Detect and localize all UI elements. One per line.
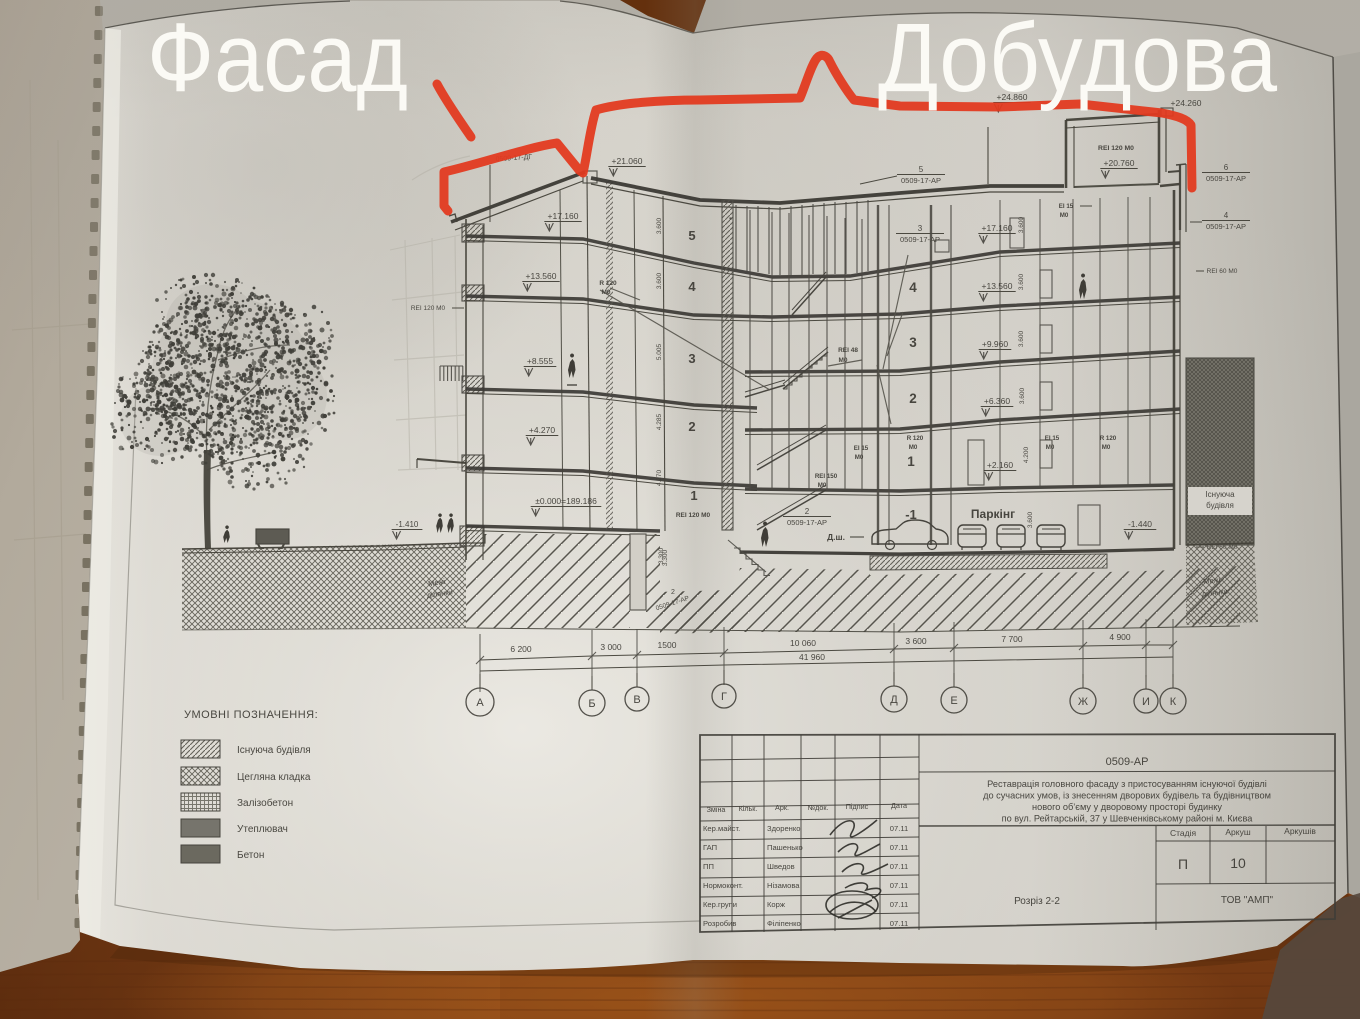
svg-text:EI 15: EI 15 — [854, 445, 869, 452]
svg-text:Паркінг: Паркінг — [971, 507, 1015, 521]
svg-text:2: 2 — [805, 507, 810, 516]
svg-text:3.600: 3.600 — [1018, 273, 1025, 290]
svg-text:M0: M0 — [1102, 444, 1111, 451]
svg-text:07.11: 07.11 — [890, 919, 908, 928]
svg-text:Нізамова: Нізамова — [767, 881, 800, 890]
svg-text:Стадія: Стадія — [1170, 828, 1197, 838]
svg-text:REI 120 M0: REI 120 M0 — [1098, 145, 1134, 152]
svg-text:Здоренко: Здоренко — [767, 824, 801, 833]
svg-text:0509-АР: 0509-АР — [1106, 756, 1149, 768]
svg-text:R 120: R 120 — [1100, 435, 1117, 442]
svg-text:EI 15: EI 15 — [1059, 203, 1074, 210]
svg-text:M0: M0 — [818, 482, 827, 489]
svg-text:+8.555: +8.555 — [527, 356, 554, 366]
svg-text:Пашенько: Пашенько — [767, 843, 803, 852]
svg-text:1500: 1500 — [658, 640, 677, 650]
svg-text:+4.270: +4.270 — [529, 425, 556, 435]
svg-text:Добудова: Добудова — [878, 3, 1277, 112]
svg-text:4.270: 4.270 — [656, 469, 663, 486]
svg-text:Б: Б — [588, 698, 595, 710]
svg-text:до сучасних умов, із знесенням: до сучасних умов, із знесенням дворових … — [983, 791, 1271, 801]
svg-text:Аркушів: Аркушів — [1284, 826, 1316, 836]
svg-text:3: 3 — [909, 335, 917, 350]
svg-text:Шведов: Шведов — [767, 862, 795, 871]
svg-text:П: П — [1178, 856, 1188, 872]
svg-text:M0: M0 — [1060, 212, 1069, 219]
svg-text:M0: M0 — [855, 454, 864, 461]
svg-text:Кер.майст.: Кер.майст. — [703, 824, 740, 833]
svg-text:+21.060: +21.060 — [612, 156, 643, 166]
svg-text:Д.ш.: Д.ш. — [827, 532, 845, 542]
svg-text:3.600: 3.600 — [1019, 387, 1026, 404]
svg-text:07.11: 07.11 — [890, 881, 908, 890]
svg-text:6: 6 — [1224, 163, 1229, 172]
svg-text:07.11: 07.11 — [890, 843, 908, 852]
svg-text:Нормоконт.: Нормоконт. — [703, 881, 743, 890]
svg-text:0509-17-АР: 0509-17-АР — [900, 235, 940, 244]
svg-text:Е: Е — [950, 695, 957, 707]
svg-text:M0: M0 — [909, 444, 918, 451]
svg-text:ГАП: ГАП — [703, 843, 717, 852]
svg-text:Межі: Межі — [1203, 575, 1221, 586]
svg-text:3.600: 3.600 — [656, 272, 663, 289]
svg-text:2: 2 — [909, 391, 917, 406]
svg-text:3 600: 3 600 — [905, 636, 927, 646]
svg-text:Філіпенко: Філіпенко — [767, 919, 801, 928]
svg-text:10: 10 — [1230, 855, 1246, 871]
svg-text:нового об’єму у дворовому прос: нового об’єму у дворовому просторі будин… — [1032, 802, 1222, 812]
svg-text:3.300: 3.300 — [662, 549, 669, 566]
svg-text:3.600: 3.600 — [1027, 511, 1034, 528]
svg-text:ТОВ "АМП": ТОВ "АМП" — [1221, 895, 1274, 906]
svg-text:+6.360: +6.360 — [984, 396, 1011, 406]
svg-text:7 700: 7 700 — [1001, 634, 1023, 644]
svg-text:5: 5 — [919, 165, 924, 174]
svg-text:M0: M0 — [601, 289, 610, 296]
svg-text:УМОВНІ ПОЗНАЧЕННЯ:: УМОВНІ ПОЗНАЧЕННЯ: — [184, 709, 318, 721]
svg-text:4 900: 4 900 — [1109, 632, 1131, 642]
svg-text:Зміна: Зміна — [707, 805, 726, 814]
svg-text:4: 4 — [909, 280, 917, 295]
svg-text:4.200: 4.200 — [1023, 446, 1030, 463]
svg-text:№док.: №док. — [807, 803, 828, 812]
svg-text:Розріз 2-2: Розріз 2-2 — [1014, 896, 1060, 907]
svg-text:ПП: ПП — [703, 862, 714, 871]
svg-text:M0: M0 — [838, 357, 847, 364]
svg-text:4.285: 4.285 — [656, 413, 663, 430]
svg-text:+13.560: +13.560 — [526, 271, 557, 281]
svg-text:EI 15: EI 15 — [1045, 435, 1060, 442]
svg-text:3.600: 3.600 — [656, 217, 663, 234]
svg-text:2: 2 — [688, 419, 695, 434]
svg-text:07.11: 07.11 — [890, 862, 908, 871]
svg-text:Залізобетон: Залізобетон — [237, 797, 293, 809]
svg-text:И: И — [1142, 696, 1150, 708]
svg-text:Кільк.: Кільк. — [739, 804, 758, 813]
svg-text:0509-17-АР: 0509-17-АР — [901, 176, 941, 185]
svg-text:Реставрація головного фасаду з: Реставрація головного фасаду з пристосув… — [987, 779, 1267, 789]
svg-text:3 000: 3 000 — [600, 642, 622, 652]
svg-text:+2.160: +2.160 — [987, 460, 1014, 470]
svg-text:+17.160: +17.160 — [548, 211, 579, 221]
svg-text:1: 1 — [907, 454, 915, 469]
svg-text:Існуюча: Існуюча — [1205, 490, 1235, 499]
svg-text:Дата: Дата — [891, 801, 907, 810]
svg-text:1: 1 — [690, 488, 697, 503]
svg-text:R 120: R 120 — [907, 435, 924, 442]
svg-text:Підпис: Підпис — [846, 802, 869, 811]
svg-text:REI 150: REI 150 — [815, 473, 838, 480]
svg-text:А: А — [476, 697, 484, 709]
svg-text:2: 2 — [671, 589, 675, 596]
svg-text:Фасад: Фасад — [147, 3, 408, 112]
svg-text:41 960: 41 960 — [799, 652, 825, 662]
svg-text:Цегляна кладка: Цегляна кладка — [237, 772, 311, 783]
svg-text:10 060: 10 060 — [790, 638, 816, 648]
svg-text:Корж: Корж — [767, 900, 786, 909]
svg-text:Утеплювач: Утеплювач — [237, 824, 288, 835]
svg-text:+17.160: +17.160 — [982, 223, 1013, 233]
svg-text:Кер.групи: Кер.групи — [703, 900, 737, 909]
svg-text:0509-17-АР: 0509-17-АР — [787, 518, 827, 527]
svg-text:3.600: 3.600 — [1018, 330, 1025, 347]
svg-text:+20.760: +20.760 — [1104, 158, 1135, 168]
svg-text:-1.410: -1.410 — [396, 520, 419, 529]
svg-text:Д: Д — [890, 694, 898, 706]
svg-text:0509-17-АР: 0509-17-АР — [1206, 174, 1246, 183]
svg-text:4: 4 — [1224, 211, 1229, 220]
svg-text:REI 48: REI 48 — [838, 347, 858, 354]
svg-text:6 200: 6 200 — [510, 644, 532, 654]
svg-text:Бетон: Бетон — [237, 850, 264, 861]
svg-text:Г: Г — [721, 691, 727, 703]
svg-text:по вул. Рейтарській, 37 у Шевч: по вул. Рейтарській, 37 у Шевченківськом… — [1002, 814, 1254, 824]
svg-text:-1.440: -1.440 — [1128, 519, 1152, 529]
svg-text:07.11: 07.11 — [890, 824, 908, 833]
svg-text:3: 3 — [918, 224, 923, 233]
svg-text:5: 5 — [688, 228, 695, 243]
svg-text:Арк.: Арк. — [775, 803, 789, 812]
svg-text:Ж: Ж — [1078, 696, 1088, 708]
svg-text:REI 60 M0: REI 60 M0 — [1207, 268, 1238, 275]
svg-text:0509-17-АР: 0509-17-АР — [1206, 222, 1246, 231]
svg-text:Існуюча будівля: Існуюча будівля — [237, 744, 311, 756]
svg-text:4: 4 — [688, 279, 696, 294]
svg-text:будівля: будівля — [1206, 501, 1234, 510]
svg-text:REI 120 M0: REI 120 M0 — [676, 512, 711, 519]
svg-text:R 120: R 120 — [599, 280, 617, 287]
svg-text:+13.560: +13.560 — [982, 281, 1013, 291]
svg-text:+9.960: +9.960 — [982, 339, 1009, 349]
svg-text:Розробив: Розробив — [703, 919, 736, 928]
svg-text:REI 120 M0: REI 120 M0 — [411, 305, 446, 312]
svg-text:3: 3 — [688, 351, 695, 366]
svg-text:В: В — [633, 694, 640, 706]
svg-text:±0.000=189.186: ±0.000=189.186 — [535, 496, 597, 506]
svg-text:К: К — [1170, 696, 1177, 708]
svg-text:07.11: 07.11 — [890, 900, 908, 909]
svg-text:Аркуш: Аркуш — [1225, 827, 1250, 837]
svg-text:5.005: 5.005 — [656, 343, 663, 360]
svg-text:M0: M0 — [1046, 444, 1055, 451]
svg-text:3.600: 3.600 — [1018, 216, 1025, 233]
